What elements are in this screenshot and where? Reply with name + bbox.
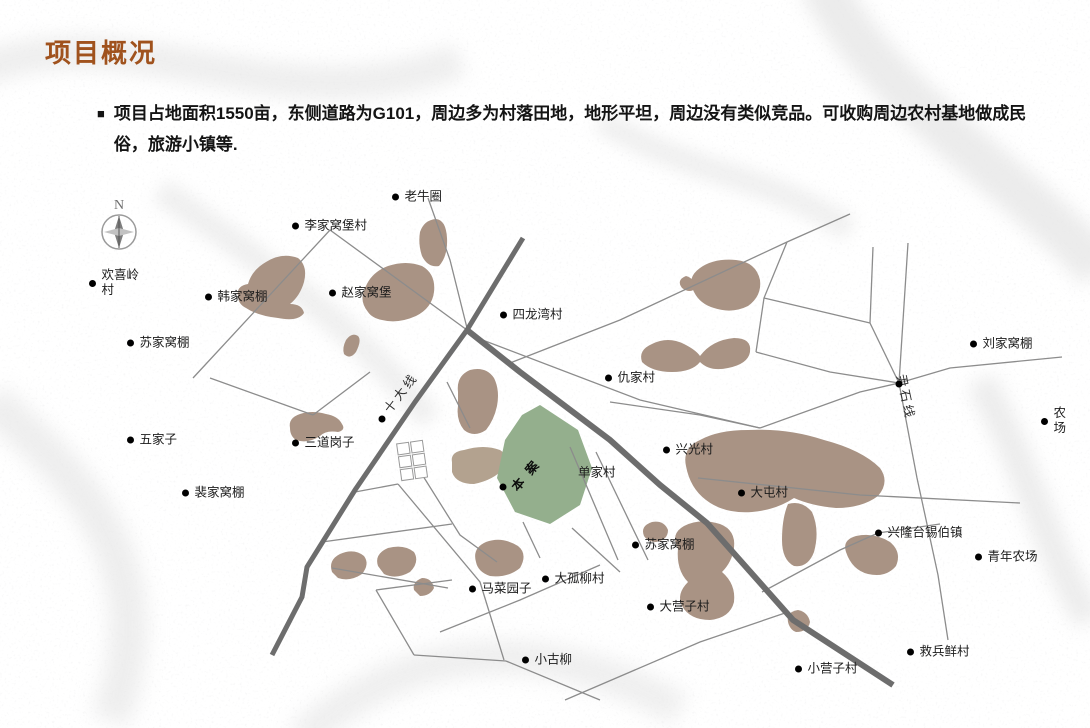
- village-label: 救兵鲜村: [920, 645, 970, 660]
- village-label: 李家窝堡村: [305, 219, 368, 234]
- village-label: 欢喜岭村: [102, 268, 148, 298]
- map-village: 欢喜岭村: [89, 268, 148, 298]
- village-label: 刘家窝棚: [983, 337, 1033, 352]
- village-label: 农场: [1054, 406, 1069, 436]
- map-village: 兴隆台锡伯镇: [875, 526, 963, 541]
- village-dot-icon: [875, 530, 882, 537]
- compass-icon: [102, 215, 136, 249]
- map-village: 大孤柳村: [542, 572, 605, 587]
- village-dot-icon: [542, 576, 549, 583]
- map-village: 苏家窝棚: [632, 538, 695, 553]
- village-dot-icon: [127, 437, 134, 444]
- map-village: 苏家窝棚: [127, 336, 190, 351]
- village-dot-icon: [970, 341, 977, 348]
- village-label: 四龙湾村: [513, 308, 563, 323]
- village-label: 大营子村: [660, 600, 710, 615]
- village-label: 大屯村: [751, 486, 789, 501]
- map-village: 小营子村: [795, 662, 858, 677]
- village-dot-icon: [632, 542, 639, 549]
- map-village: 李家窝堡村: [292, 219, 368, 234]
- village-dot-icon: [663, 447, 670, 454]
- village-label: 三道岗子: [305, 436, 355, 451]
- village-label: 单家村: [578, 466, 616, 481]
- village-dot-icon: [182, 490, 189, 497]
- village-label: 兴隆台锡伯镇: [888, 526, 963, 541]
- bullet-marker-icon: ■: [97, 98, 105, 160]
- map-village: 青年农场: [975, 550, 1038, 565]
- village-dot-icon: [738, 490, 745, 497]
- map-village: 仇家村: [605, 371, 656, 386]
- map-village: 农场: [1041, 406, 1069, 436]
- village-dot-icon: [522, 657, 529, 664]
- map-village: 小古柳: [522, 653, 573, 668]
- village-dot-icon: [975, 554, 982, 561]
- village-dot-icon: [292, 440, 299, 447]
- map-village: 单家村: [578, 466, 616, 481]
- map-village: 四龙湾村: [500, 308, 563, 323]
- village-dot-icon: [329, 290, 336, 297]
- map-village: 兴光村: [663, 443, 714, 458]
- village-dot-icon: [292, 223, 299, 230]
- map-village: 三道岗子: [292, 436, 355, 451]
- village-dot-icon: [89, 280, 96, 287]
- map-village: 赵家窝堡: [329, 286, 392, 301]
- map-village: 马菜园子: [469, 582, 532, 597]
- map-village: 大屯村: [738, 486, 789, 501]
- page-title: 项目概况: [45, 33, 157, 70]
- village-label: 赵家窝堡: [342, 286, 392, 301]
- village-dot-icon: [469, 586, 476, 593]
- compass-north-label: N: [114, 198, 124, 214]
- bullet-item: ■ 项目占地面积1550亩，东侧道路为G101，周边多为村落田地，地形平坦，周边…: [97, 98, 1047, 160]
- map-village: 救兵鲜村: [907, 645, 970, 660]
- village-label: 大孤柳村: [555, 572, 605, 587]
- map-village: 韩家窝棚: [205, 290, 268, 305]
- village-label: 仇家村: [618, 371, 656, 386]
- map-village: 老牛圈: [392, 190, 443, 205]
- slide: 项目概况 ■ 项目占地面积1550亩，东侧道路为G101，周边多为村落田地，地形…: [0, 0, 1090, 728]
- village-dot-icon: [605, 375, 612, 382]
- village-label: 苏家窝棚: [645, 538, 695, 553]
- village-label: 小古柳: [535, 653, 573, 668]
- village-label: 小营子村: [808, 662, 858, 677]
- junction-dot: [379, 416, 386, 423]
- village-label: 老牛圈: [405, 190, 443, 205]
- village-label: 兴光村: [676, 443, 714, 458]
- village-label: 马菜园子: [482, 582, 532, 597]
- map-village: 刘家窝棚: [970, 337, 1033, 352]
- village-label: 裴家窝棚: [195, 486, 245, 501]
- village-label: 青年农场: [988, 550, 1038, 565]
- village-label: 五家子: [140, 433, 178, 448]
- village-dot-icon: [500, 312, 507, 319]
- junction-dot: [896, 381, 903, 388]
- map-village: 大营子村: [647, 600, 710, 615]
- village-dot-icon: [1041, 418, 1048, 425]
- village-dot-icon: [907, 649, 914, 656]
- village-dot-icon: [647, 604, 654, 611]
- bullet-text: 项目占地面积1550亩，东侧道路为G101，周边多为村落田地，地形平坦，周边没有…: [114, 98, 1047, 160]
- village-dot-icon: [205, 294, 212, 301]
- village-dot-icon: [127, 340, 134, 347]
- village-label: 苏家窝棚: [140, 336, 190, 351]
- village-dot-icon: [795, 666, 802, 673]
- site-dot: [500, 484, 507, 491]
- village-dot-icon: [392, 194, 399, 201]
- map-village: 五家子: [127, 433, 178, 448]
- village-label: 韩家窝棚: [218, 290, 268, 305]
- map-village: 裴家窝棚: [182, 486, 245, 501]
